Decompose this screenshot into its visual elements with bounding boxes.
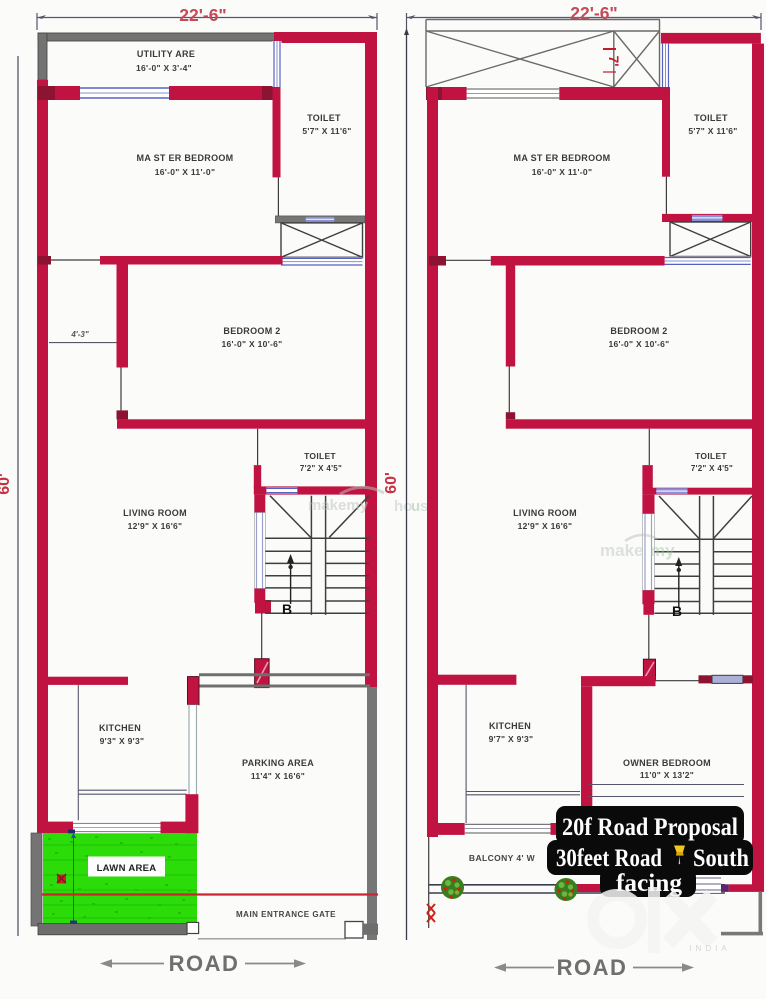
- svg-text:TOILET: TOILET: [694, 113, 728, 123]
- svg-text:ROAD: ROAD: [557, 955, 628, 980]
- svg-text:ho: ho: [394, 498, 412, 515]
- svg-text:PARKING AREA: PARKING AREA: [242, 758, 314, 768]
- svg-text:LAWN AREA: LAWN AREA: [97, 863, 157, 874]
- svg-text:11'4" X 16'6": 11'4" X 16'6": [251, 771, 305, 781]
- svg-text:TOILET: TOILET: [695, 451, 727, 461]
- svg-text:KITCHEN: KITCHEN: [489, 721, 531, 731]
- svg-text:16'-0" X 10'-6": 16'-0" X 10'-6": [221, 339, 282, 349]
- svg-text:u: u: [411, 498, 420, 515]
- svg-text:BALCONY 4' W: BALCONY 4' W: [469, 853, 536, 863]
- svg-text:ROAD: ROAD: [169, 951, 240, 976]
- svg-text:LIVING ROOM: LIVING ROOM: [123, 508, 187, 518]
- svg-text:60': 60': [383, 472, 400, 494]
- svg-text:BEDROOM 2: BEDROOM 2: [223, 326, 280, 336]
- svg-text:16'-0" X 11'-0": 16'-0" X 11'-0": [155, 167, 216, 177]
- svg-text:16'-0" X 3'-4": 16'-0" X 3'-4": [136, 63, 192, 73]
- svg-text:UTILITY ARE: UTILITY ARE: [137, 49, 195, 59]
- svg-text:11'0" X 13'2": 11'0" X 13'2": [640, 770, 694, 780]
- svg-text:TOILET: TOILET: [304, 451, 336, 461]
- svg-text:20f Road Proposal: 20f Road Proposal: [562, 814, 738, 841]
- svg-text:16'-0" X 11'-0": 16'-0" X 11'-0": [532, 167, 593, 177]
- svg-text:MAIN ENTRANCE GATE: MAIN ENTRANCE GATE: [236, 910, 336, 919]
- svg-text:4'-3": 4'-3": [70, 330, 88, 339]
- svg-text:TOILET: TOILET: [307, 113, 341, 123]
- svg-text:12'9" X 16'6": 12'9" X 16'6": [128, 521, 183, 531]
- svg-text:B: B: [672, 603, 682, 619]
- svg-text:South: South: [693, 845, 749, 872]
- svg-text:MA ST ER BEDROOM: MA ST ER BEDROOM: [514, 153, 611, 163]
- svg-text:7'2" X 4'5": 7'2" X 4'5": [691, 464, 733, 473]
- svg-text:9'7" X 9'3": 9'7" X 9'3": [489, 734, 534, 744]
- svg-text:7': 7': [606, 55, 622, 66]
- svg-text:INDIA: INDIA: [689, 944, 730, 953]
- svg-text:30feet Road: 30feet Road: [556, 845, 662, 872]
- svg-text:LIVING ROOM: LIVING ROOM: [513, 508, 577, 518]
- svg-text:22'-6": 22'-6": [179, 5, 226, 25]
- svg-text:makemy: makemy: [308, 497, 369, 514]
- svg-text:7'2" X 4'5": 7'2" X 4'5": [300, 464, 342, 473]
- svg-text:KITCHEN: KITCHEN: [99, 723, 141, 733]
- svg-text:B: B: [282, 601, 292, 617]
- svg-text:16'-0" X 10'-6": 16'-0" X 10'-6": [608, 339, 669, 349]
- svg-text:5'7" X 11'6": 5'7" X 11'6": [688, 126, 737, 136]
- svg-text:BEDROOM 2: BEDROOM 2: [610, 326, 667, 336]
- svg-text:OWNER BEDROOM: OWNER BEDROOM: [623, 758, 711, 768]
- svg-text:60': 60': [0, 473, 13, 495]
- svg-text:12'9" X 16'6": 12'9" X 16'6": [518, 521, 573, 531]
- svg-text:my: my: [650, 541, 675, 560]
- svg-text:MA ST ER BEDROOM: MA ST ER BEDROOM: [137, 153, 234, 163]
- svg-text:9'3" X 9'3": 9'3" X 9'3": [100, 736, 145, 746]
- svg-text:5'7" X 11'6": 5'7" X 11'6": [302, 126, 351, 136]
- svg-text:make: make: [600, 541, 643, 560]
